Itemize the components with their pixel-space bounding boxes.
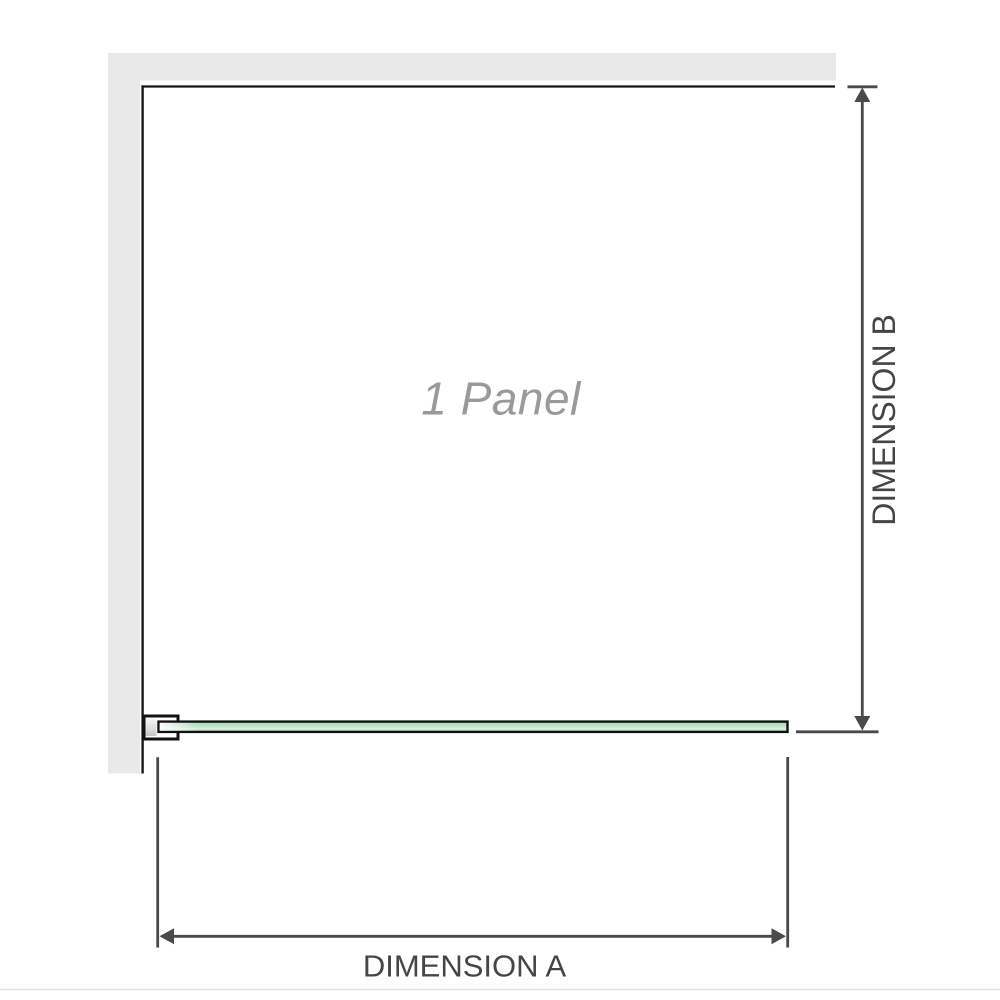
svg-text:DIMENSION A: DIMENSION A <box>363 949 567 984</box>
svg-text:DIMENSION B: DIMENSION B <box>866 314 902 526</box>
svg-text:1 Panel: 1 Panel <box>421 373 582 425</box>
